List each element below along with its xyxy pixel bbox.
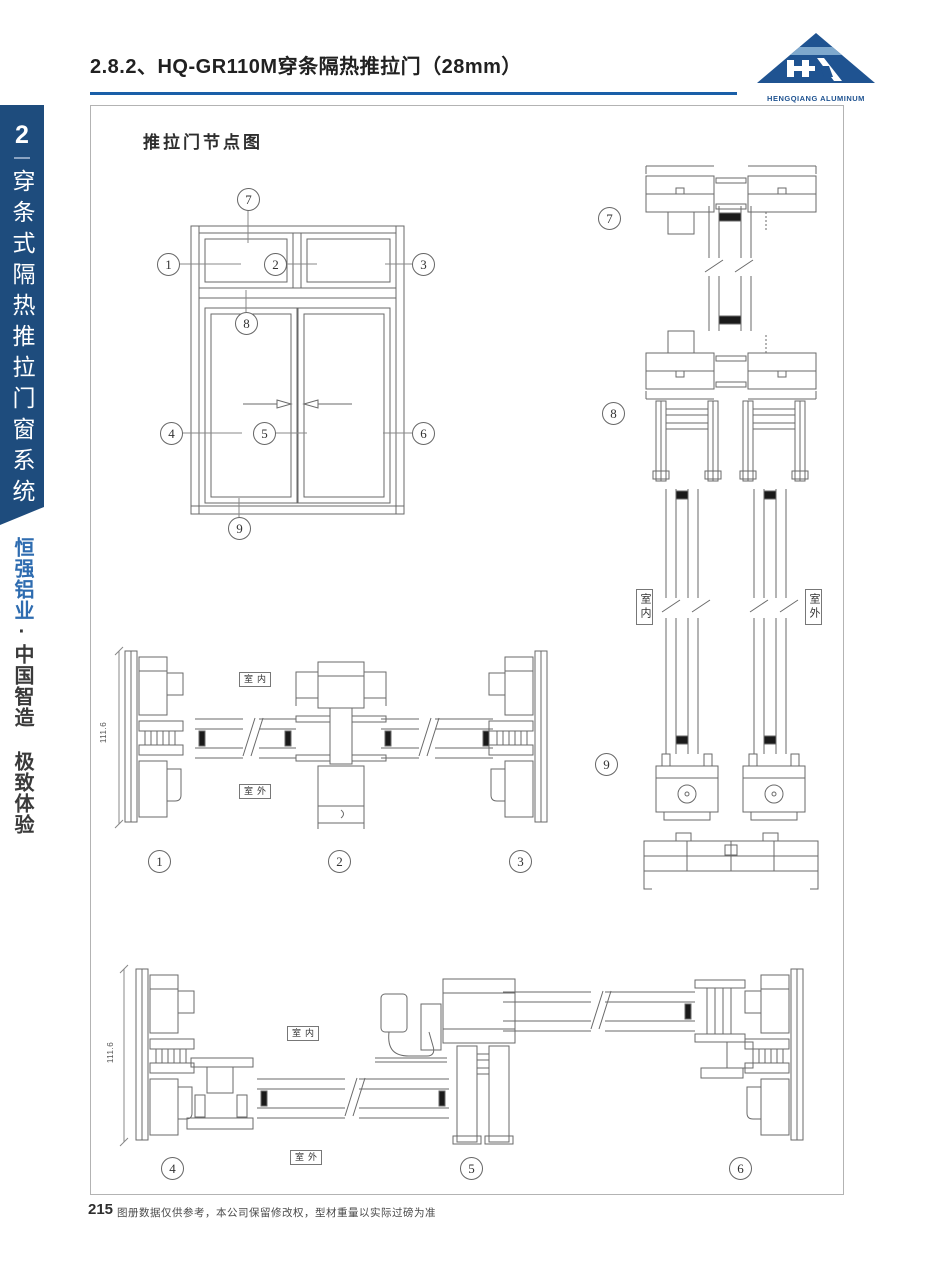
outdoor-label: 室外 — [805, 589, 822, 625]
title-underline — [90, 92, 737, 95]
chapter-title: 穿条式隔热推拉门窗系统 — [5, 169, 39, 510]
logo-triangle-icon — [757, 33, 875, 87]
page-number: 215 — [88, 1201, 113, 1218]
section-7-8-9-drawing — [644, 166, 818, 889]
indoor-label: 室内 — [636, 589, 653, 625]
section-5-profile — [375, 979, 515, 1144]
section-label-3: 3 — [509, 850, 532, 873]
elevation-callout-2: 2 — [264, 253, 287, 276]
outdoor-label: 室外 — [290, 1150, 322, 1165]
section-1-2-3-drawing — [115, 647, 547, 829]
page-title: 2.8.2、HQ-GR110M穿条隔热推拉门（28mm） — [90, 50, 522, 79]
catalog-page: 2.8.2、HQ-GR110M穿条隔热推拉门（28mm） HENGQIANG A… — [0, 0, 930, 1262]
section-label-8: 8 — [602, 402, 625, 425]
elevation-callout-1: 1 — [157, 253, 180, 276]
drawing-frame: 推拉门节点图 7 1 2 3 8 4 5 6 9 7 8 9 1 2 3 4 5… — [90, 105, 844, 1195]
drawing-title: 推拉门节点图 — [143, 128, 263, 153]
elevation-callout-5: 5 — [253, 422, 276, 445]
dimension-label-left: 111.6 — [99, 722, 108, 743]
sidebar-brand-column: 恒强铝业·中国智造 极致体验 — [0, 537, 44, 835]
elevation-callout-6: 6 — [412, 422, 435, 445]
dimension-label-bottom: 111.6 — [106, 1042, 115, 1063]
elevation-callout-4: 4 — [160, 422, 183, 445]
technical-drawing — [91, 106, 841, 1192]
section-4-5-6-drawing — [120, 965, 803, 1146]
company-logo: HENGQIANG ALUMINUM — [757, 33, 875, 101]
chapter-divider — [14, 157, 30, 159]
outdoor-label: 室外 — [239, 784, 271, 799]
section-label-6: 6 — [729, 1157, 752, 1180]
logo-brand-text: HENGQIANG ALUMINUM — [757, 94, 875, 103]
chapter-number: 2 — [15, 121, 29, 150]
indoor-label: 室内 — [239, 672, 271, 687]
brand-slogan: ·中国智造 极致体验 — [11, 621, 33, 835]
elevation-callout-9: 9 — [228, 517, 251, 540]
section-label-9: 9 — [595, 753, 618, 776]
section-label-7: 7 — [598, 207, 621, 230]
section-label-1: 1 — [148, 850, 171, 873]
brand-name: 恒强铝业 — [11, 537, 33, 621]
footer-disclaimer: 图册数据仅供参考，本公司保留修改权，型材重量以实际过磅为准 — [117, 1205, 436, 1220]
section-label-2: 2 — [328, 850, 351, 873]
section-label-4: 4 — [161, 1157, 184, 1180]
indoor-label: 室内 — [287, 1026, 319, 1041]
elevation-callout-7: 7 — [237, 188, 260, 211]
section-label-5: 5 — [460, 1157, 483, 1180]
elevation-callout-3: 3 — [412, 253, 435, 276]
elevation-callout-8: 8 — [235, 312, 258, 335]
sidebar-chapter-banner: 2 穿条式隔热推拉门窗系统 — [0, 105, 44, 525]
elevation-drawing — [179, 210, 412, 517]
